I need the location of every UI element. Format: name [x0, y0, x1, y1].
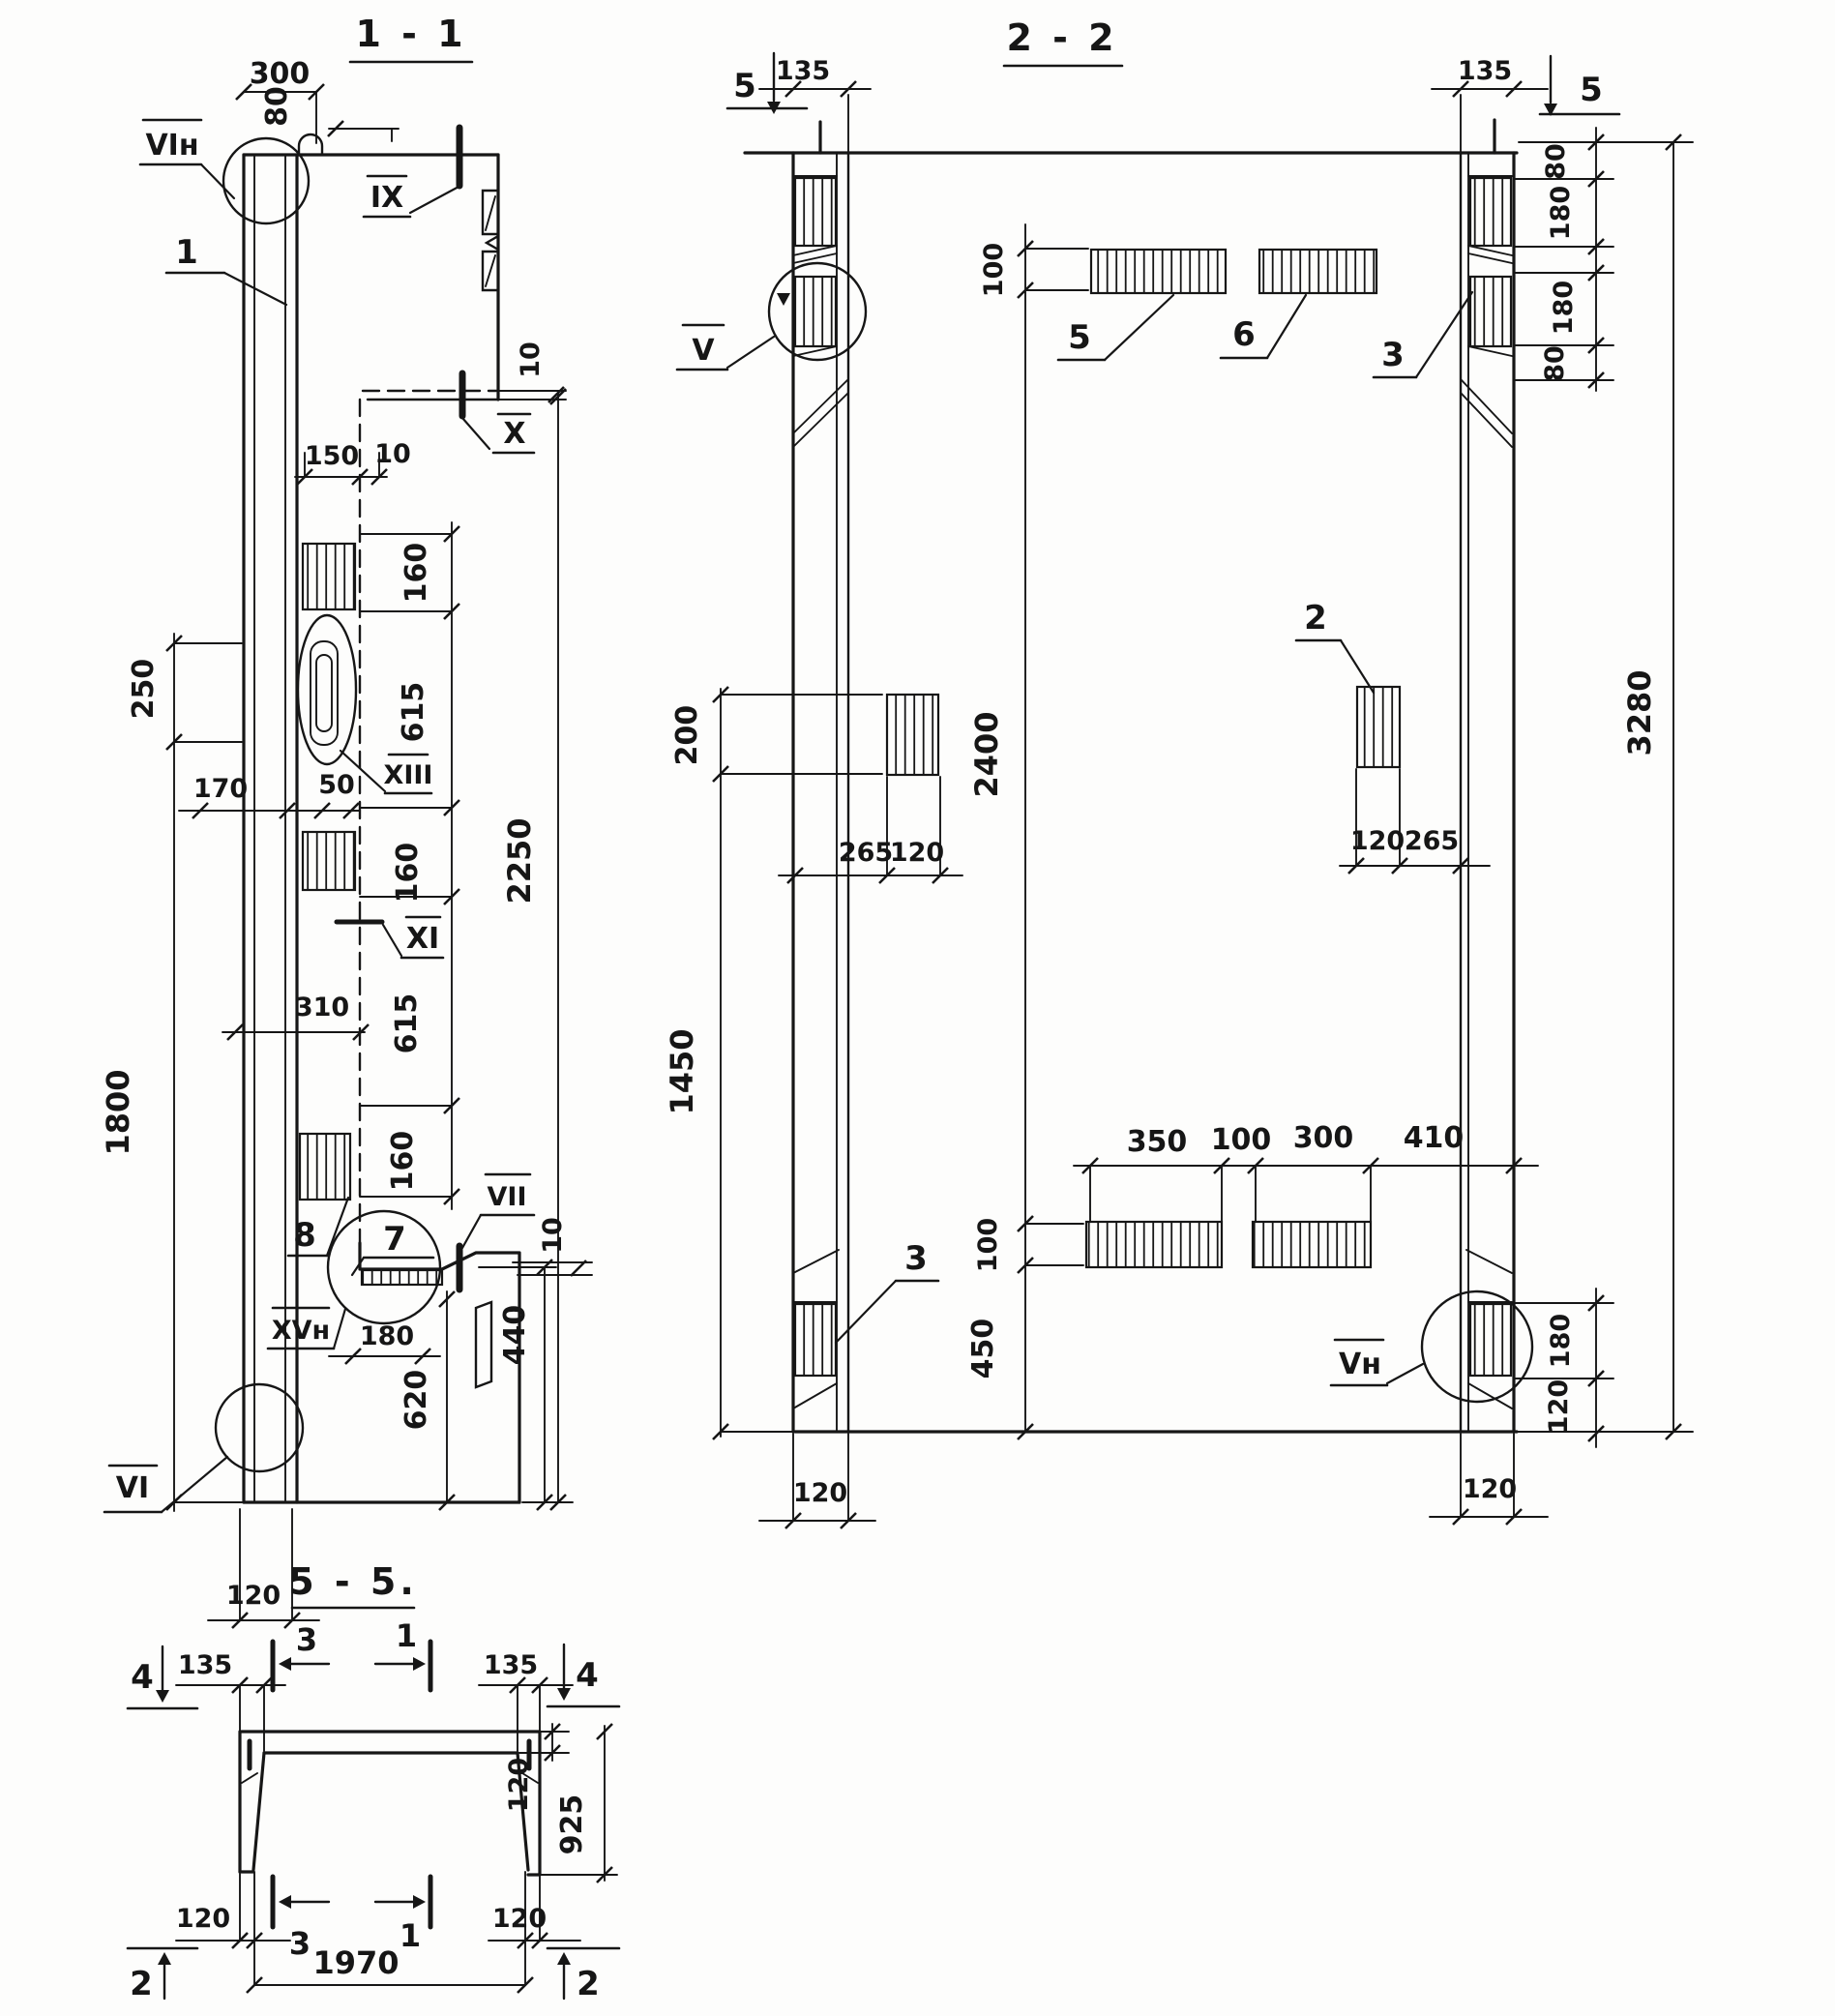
marker-4-left-label: 4: [131, 1658, 154, 1697]
ledge-notch: [487, 236, 498, 250]
dim-170: 170: [193, 774, 248, 804]
section-5-5-view: 5 - 5. 4 4: [128, 1560, 619, 2003]
dim-160-c: 160: [386, 1131, 420, 1192]
dim-120: 120: [226, 1581, 281, 1611]
dim-120-right-55: 120: [492, 1904, 547, 1934]
dim-80-b: 80: [1540, 345, 1570, 382]
dim-160-a: 160: [400, 543, 433, 604]
dim-135-right: 135: [1458, 56, 1512, 86]
step-hatch: [362, 1270, 442, 1285]
label-xiii: XIII: [384, 760, 433, 790]
dim-100-top: 100: [979, 243, 1009, 297]
channel-outline: [240, 1732, 540, 1875]
ref-5: 5: [1068, 318, 1091, 357]
label-xi: XI: [406, 922, 439, 956]
dim-265-left: 265: [839, 838, 893, 868]
dim-135-right-55: 135: [484, 1650, 538, 1680]
marker-5-left-label: 5: [733, 67, 756, 105]
label-v: V: [692, 334, 715, 368]
rebar-zone-b: [303, 832, 355, 890]
dim-620: 620: [400, 1370, 433, 1431]
embed-plate-right: [1357, 687, 1400, 767]
section-5-5-title: 5 - 5.: [288, 1560, 418, 1603]
dim-3280: 3280: [1621, 669, 1658, 756]
dim-120-slab: 120: [504, 1758, 534, 1812]
label-vi: VI: [116, 1471, 149, 1505]
dim-1970: 1970: [312, 1944, 399, 1981]
dim-120-rc: 120: [1544, 1379, 1574, 1434]
ref-6: 6: [1232, 315, 1256, 354]
dim-100-mid: 100: [1211, 1123, 1272, 1157]
dim-135-left: 135: [776, 56, 830, 86]
dim-10-bot: 10: [538, 1217, 568, 1254]
rebar-zone-c: [300, 1134, 350, 1200]
labels-1-1: VIн 1 IX X XIII XI 8 7: [104, 120, 534, 1512]
dim-450: 450: [966, 1319, 1000, 1379]
ref-2: 2: [1304, 599, 1327, 637]
dim-350: 350: [1127, 1125, 1188, 1159]
dim-120-left: 120: [890, 838, 944, 868]
dim-120-right: 120: [1350, 826, 1405, 856]
dim-lines-1-1: 300 80 10 150 10 16: [100, 57, 790, 1628]
cut-marker-1-top: 1: [375, 1617, 430, 1690]
left-rib-details: [793, 176, 848, 1408]
dim-160-b: 160: [391, 843, 425, 904]
panel-edge-outline: [244, 134, 519, 1502]
dim-50: 50: [318, 770, 355, 800]
rebar-bottom-left: [1086, 1222, 1222, 1267]
dim-200: 200: [670, 705, 704, 766]
dim-2400: 2400: [968, 711, 1005, 797]
dim-180-a: 180: [1546, 186, 1576, 240]
label-xv-n: XVн: [272, 1316, 330, 1346]
label-v-n: Vн: [1339, 1348, 1381, 1381]
label-vi-n: VIн: [145, 129, 198, 163]
marker-4-right-label: 4: [576, 1656, 599, 1695]
label-vii: VII: [488, 1182, 527, 1212]
dim-80-a: 80: [1541, 143, 1571, 180]
marker-1-top-label: 1: [396, 1617, 417, 1654]
dim-120-col-left: 120: [793, 1478, 847, 1508]
marker-2-left-label: 2: [130, 1965, 153, 2003]
dim-250: 250: [127, 659, 161, 720]
dim-300: 300: [250, 57, 311, 91]
cut-marker-1-bottom: 1: [375, 1877, 430, 1954]
marker-1-bottom-label: 1: [400, 1917, 421, 1954]
ref-3-left: 3: [904, 1239, 928, 1278]
ref-3-right: 3: [1381, 336, 1405, 374]
dim-lines-5-5: 135 135 120 925 120 120: [176, 1650, 617, 1993]
dim-925: 925: [555, 1794, 589, 1855]
dim-100-bot: 100: [973, 1218, 1003, 1272]
marker-5-right-label: 5: [1580, 71, 1603, 109]
dim-300: 300: [1293, 1121, 1354, 1155]
dim-150: 150: [305, 441, 359, 471]
cut-marker-5-right: 5: [1540, 56, 1619, 116]
dim-1800: 1800: [100, 1069, 136, 1155]
dim-440: 440: [498, 1305, 532, 1366]
section-1-1-view: 1 - 1: [100, 13, 790, 1628]
ref-8: 8: [293, 1216, 316, 1255]
label-ix: IX: [370, 181, 403, 215]
dim-1450: 1450: [664, 1028, 700, 1114]
detail-circle-vi: [216, 1384, 303, 1471]
dim-180-b: 180: [1549, 281, 1579, 335]
label-x: X: [503, 417, 525, 451]
rebar-5: [1091, 250, 1226, 293]
section-2-2-view: 2 - 2: [664, 16, 1693, 1528]
lifting-loop: [299, 134, 322, 155]
dim-265-right: 265: [1405, 826, 1459, 856]
dim-135-left-55: 135: [178, 1650, 232, 1680]
dim-615-b: 615: [390, 993, 424, 1054]
dim-120-col-right: 120: [1463, 1474, 1517, 1504]
dim-180: 180: [360, 1321, 414, 1351]
cut-marker-2-right: 2: [548, 1948, 619, 2003]
ref-1: 1: [175, 233, 198, 272]
cut-marker-2-left: 2: [128, 1948, 197, 2003]
rebar-bottom-right: [1253, 1222, 1371, 1267]
dim-120-left-55: 120: [176, 1904, 230, 1934]
dim-615-a: 615: [397, 682, 430, 743]
rebar-zone-a: [303, 544, 355, 609]
dim-2250: 2250: [501, 817, 538, 904]
slot-detail-xiii: [298, 615, 356, 764]
dim-10-top: 10: [516, 341, 546, 378]
drawing-canvas: 1 - 1: [0, 0, 1835, 2016]
marker-3-bottom-label: 3: [289, 1925, 311, 1962]
rebar-6: [1259, 250, 1376, 293]
dim-180-r: 180: [1546, 1314, 1576, 1368]
cut-marker-3-top: 3: [273, 1621, 329, 1690]
flange-groove: [476, 1302, 491, 1387]
drawing-sheet: 1 - 1: [0, 0, 1835, 2016]
dim-10-mid: 10: [374, 439, 411, 469]
embed-plate-left: [887, 695, 938, 775]
cut-marker-4-right: 4: [548, 1645, 619, 1706]
dim-80: 80: [260, 86, 294, 127]
marker-2-right-label: 2: [577, 1965, 600, 2003]
ref-7: 7: [383, 1220, 406, 1259]
section-2-2-title: 2 - 2: [1006, 16, 1117, 59]
section-1-1-title: 1 - 1: [355, 13, 466, 55]
dim-310: 310: [295, 993, 349, 1023]
dim-410: 410: [1404, 1121, 1465, 1155]
marker-3-top-label: 3: [296, 1621, 317, 1658]
